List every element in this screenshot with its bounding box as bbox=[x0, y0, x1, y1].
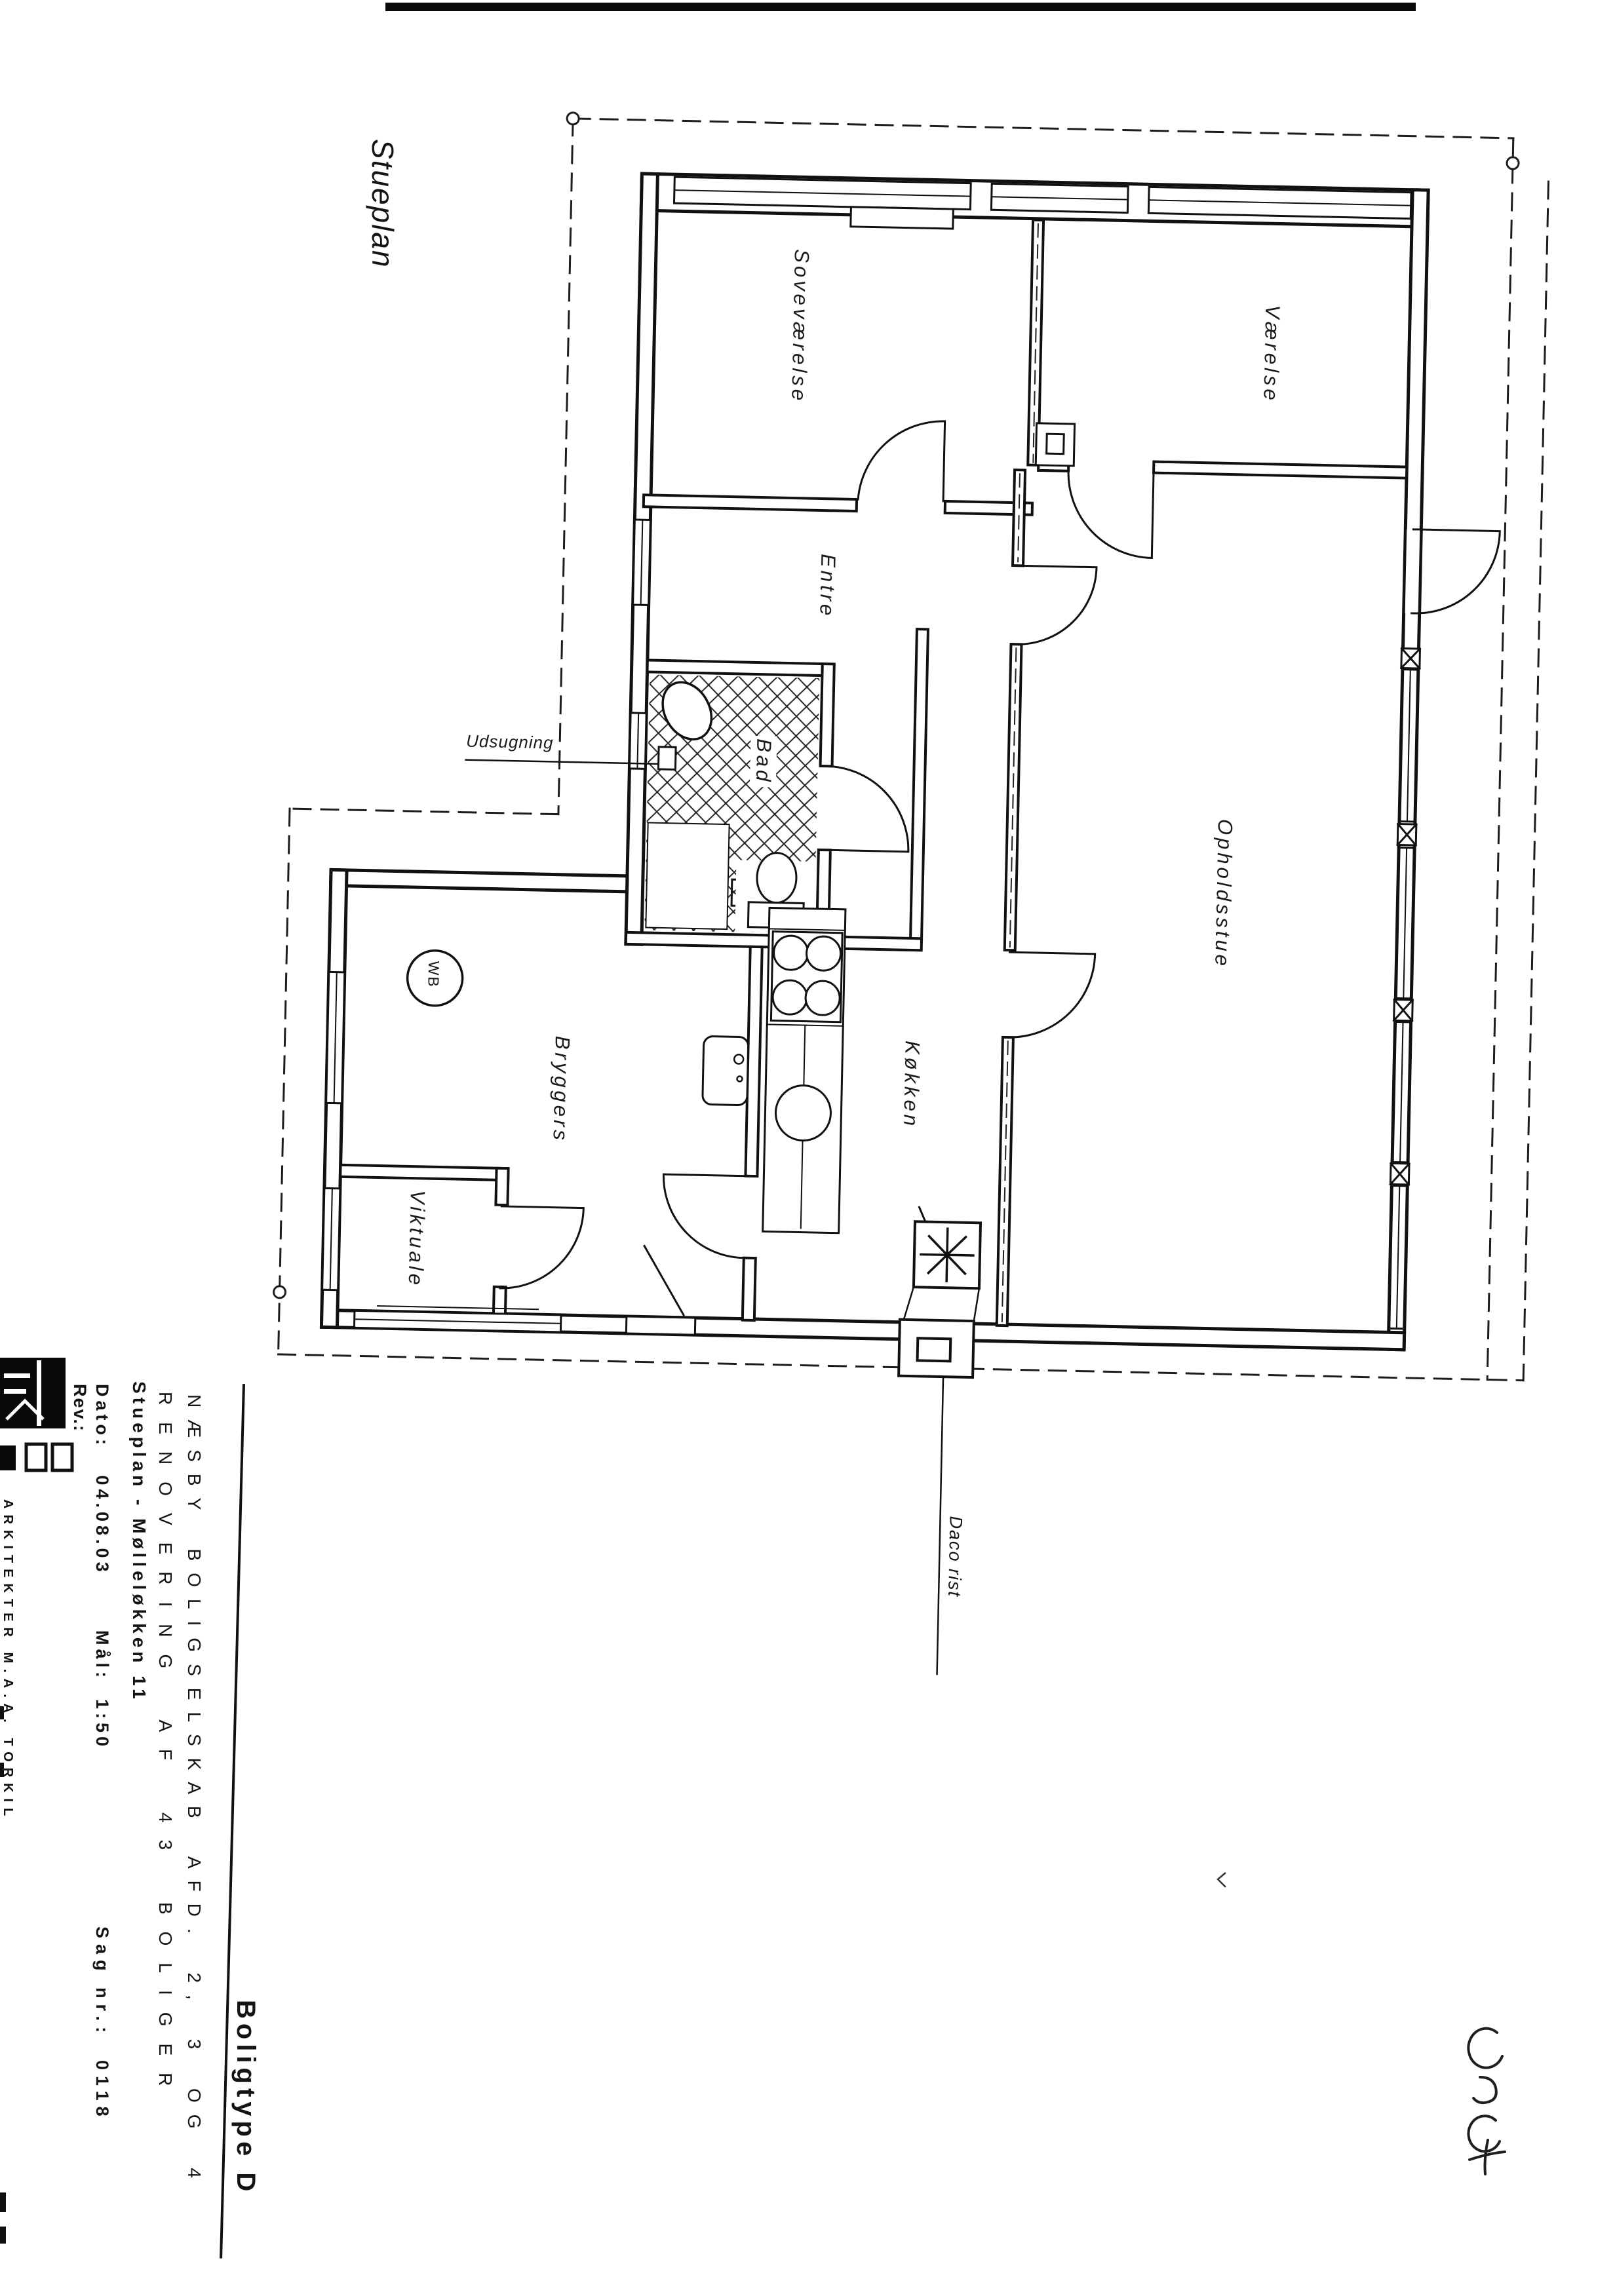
scale-field: Mål: 1:50 bbox=[92, 1630, 112, 1750]
legend-square-outline bbox=[52, 1444, 72, 1470]
entrance bbox=[893, 1207, 981, 1675]
daco-grate-icon bbox=[918, 1338, 951, 1361]
legend-square-outline bbox=[26, 1444, 46, 1470]
washing-machine-icon bbox=[407, 950, 463, 1006]
housing-type-label: Boligtype D bbox=[231, 2000, 260, 2196]
scanned-floorplan-page: Soveværelse Værelse Entre Bad Opholdsstu… bbox=[0, 0, 1615, 2296]
scan-artifacts bbox=[0, 3, 1416, 2244]
utility-fixtures bbox=[405, 950, 750, 1105]
floor-plan-drawing bbox=[0, 0, 1615, 2296]
star-symbol-icon bbox=[920, 1228, 974, 1282]
daco-leader-line bbox=[937, 1377, 944, 1674]
shower-area bbox=[646, 823, 729, 930]
architect-firm-text: ARKITEKTER M.A.A. TORKIL bbox=[0, 1499, 15, 1822]
kitchen-fixtures bbox=[763, 908, 846, 1233]
top-edge-line bbox=[385, 3, 1416, 11]
interior-walls bbox=[338, 206, 1412, 1333]
utility-sink-icon bbox=[703, 1036, 749, 1105]
kitchen-sink-icon bbox=[775, 1085, 832, 1141]
drawing-title: Stueplan bbox=[365, 139, 400, 269]
project-name-line2: RENOVERING AF 43 BOLIGER bbox=[155, 1392, 176, 2103]
case-number-field: Sag nr.: 0118 bbox=[92, 1926, 112, 2122]
legend-square-filled bbox=[0, 1445, 16, 1470]
extraction-vent bbox=[658, 747, 676, 770]
toilet-icon bbox=[756, 852, 797, 903]
architect-logo bbox=[0, 1358, 98, 1476]
drawing-description: Stueplan - Mølleløkken 11 bbox=[128, 1381, 149, 1703]
project-name-line1: NÆSBY BOLIGSELSKAB AFD. 2, 3 OG 4 bbox=[184, 1394, 204, 2190]
boundary-markers bbox=[273, 107, 1519, 1324]
handwritten-note bbox=[1442, 2012, 1560, 2208]
